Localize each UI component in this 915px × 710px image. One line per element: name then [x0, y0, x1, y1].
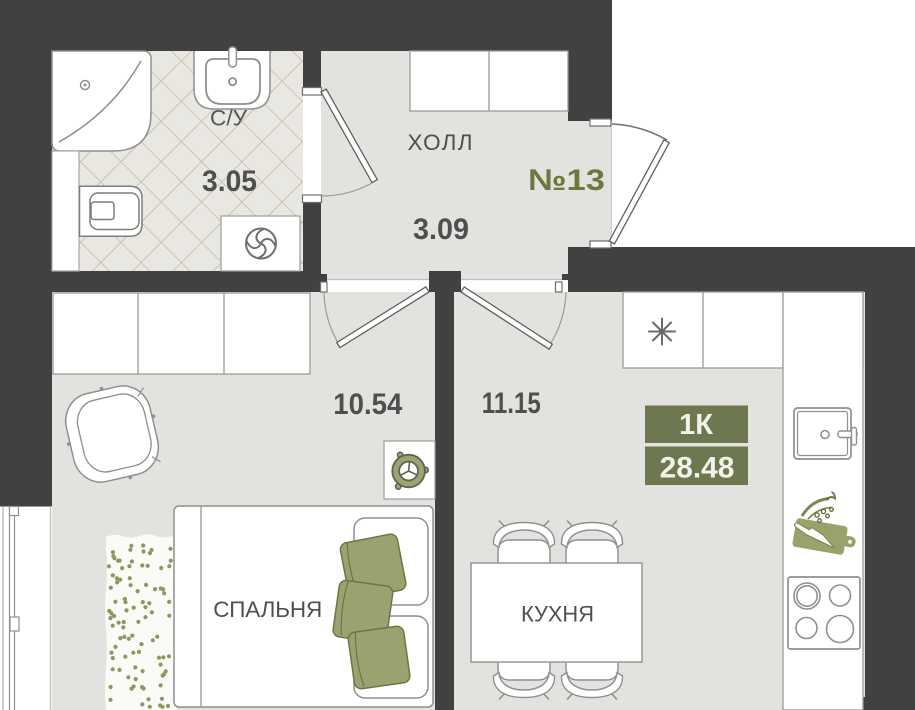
svg-text:28.48: 28.48: [660, 452, 735, 485]
svg-text:3.05: 3.05: [202, 165, 257, 198]
svg-text:№13: №13: [528, 164, 605, 197]
svg-text:1К: 1К: [679, 409, 713, 441]
svg-text:КУХНЯ: КУХНЯ: [521, 602, 594, 627]
svg-text:11.15: 11.15: [482, 387, 541, 420]
svg-text:ХОЛЛ: ХОЛЛ: [408, 130, 473, 155]
svg-text:3.09: 3.09: [413, 213, 469, 246]
svg-text:СПАЛЬНЯ: СПАЛЬНЯ: [213, 597, 322, 622]
svg-text:С/У: С/У: [210, 106, 248, 131]
svg-text:10.54: 10.54: [333, 388, 402, 421]
